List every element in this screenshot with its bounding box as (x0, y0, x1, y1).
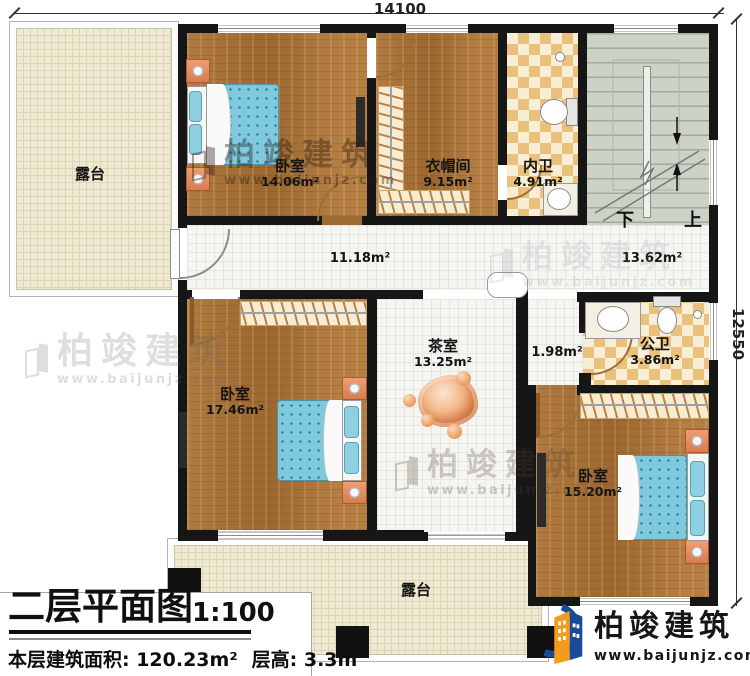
wall-hall-bath2-b (579, 373, 591, 385)
wall-cloak-bath-a (498, 33, 507, 165)
wall-bedroom3-left (528, 385, 536, 606)
wall-row1-a (187, 216, 322, 225)
cabinet (487, 272, 528, 298)
pillow (189, 91, 202, 122)
pillow (690, 500, 705, 536)
room-label-terrace-bottom: 露台 (366, 582, 466, 599)
sink-basin (547, 188, 571, 210)
valve-icon (693, 310, 702, 319)
wall-tearoom-top (377, 290, 423, 299)
room-label-bath-private: 内卫 4.91m² (498, 158, 578, 190)
plan-scale: 1:100 (192, 600, 275, 626)
nightstand (186, 59, 210, 83)
stone-ball (403, 394, 416, 407)
wall-tearoom-right (516, 290, 528, 541)
room-label-terrace-top: 露台 (40, 166, 140, 183)
dimension-right-value: 12550 (729, 294, 747, 374)
door-leaf-terrace (170, 229, 180, 279)
window (218, 530, 323, 541)
stone-ball (447, 424, 462, 439)
wall-bedroom1-cloak-a (367, 33, 376, 38)
sink-basin (597, 306, 629, 332)
nightstand (186, 167, 210, 191)
floor-area-text: 本层建筑面积: 120.23m² (8, 645, 238, 672)
brand-name: 柏竣建筑 (594, 612, 734, 642)
title-underline (9, 630, 251, 634)
bed-sheet (207, 84, 231, 165)
wardrobe-rack (580, 393, 709, 419)
wall-bedroom1-cloak-b (367, 78, 376, 216)
room-label-bedroom2: 卧室 17.46m² (185, 386, 285, 418)
wall-row2-b (240, 290, 367, 299)
bed-sheet (323, 400, 342, 481)
hall-floor (528, 299, 583, 385)
window (709, 303, 718, 360)
stair-break-line (587, 33, 709, 225)
stairs-up-label: 上 (678, 206, 708, 232)
room-label-corridor: 11.18m² (310, 252, 410, 267)
stairs-down-label: 下 (610, 206, 640, 232)
wall-left-upper (178, 24, 187, 228)
dimension-top-value: 14100 (355, 0, 445, 18)
floor-plan: 露台 卧室 14.06m² 衣帽间 9.15m² 内卫 4.91m² 11.18… (0, 0, 750, 676)
wall-bath-stairs (578, 24, 587, 225)
room-label-bedroom1: 卧室 14.06m² (240, 158, 340, 190)
pillow (344, 442, 359, 474)
toilet-bowl (540, 99, 568, 125)
pillow (690, 461, 705, 497)
tv (356, 97, 365, 147)
watermark-logo-icon (25, 344, 49, 378)
room-label-cloakroom: 衣帽间 9.15m² (398, 158, 498, 190)
brand-url: www.baijunjz.com (594, 648, 750, 664)
brand-logo-icon (533, 602, 591, 670)
stone-ball (421, 414, 434, 427)
room-label-bedroom3: 卧室 15.20m² (543, 468, 643, 500)
nightstand (342, 377, 367, 400)
window (406, 24, 468, 33)
wall-cloak-bath-b (498, 200, 507, 216)
window (580, 597, 690, 606)
toilet-bowl (657, 307, 677, 334)
floor-height-text: 层高: 3.3m (252, 645, 358, 672)
window (709, 140, 718, 205)
plan-info-line: 本层建筑面积: 120.23m² 层高: 3.3m (8, 645, 357, 672)
wall-bath2-top (577, 292, 709, 302)
room-label-tearoom: 茶室 13.25m² (393, 338, 493, 370)
nightstand (685, 429, 709, 453)
wardrobe-rack (240, 301, 367, 326)
nightstand (342, 481, 367, 504)
tv (179, 412, 187, 468)
terrace-top-floor (10, 22, 178, 296)
pillow (189, 124, 202, 155)
title-underline-thin (9, 638, 251, 640)
plan-title: 二层平面图 (8, 588, 193, 625)
room-label-landing: 13.62m² (602, 252, 702, 267)
window (218, 24, 320, 33)
wall-row1-b (362, 216, 578, 225)
toilet-tank (653, 296, 681, 307)
wall-bedroom2-tearoom (367, 290, 377, 530)
valve-icon (555, 52, 565, 62)
room-label-bath-public: 公卫 3.86m² (605, 336, 705, 368)
pillow (344, 406, 359, 438)
window (614, 24, 678, 33)
sliding-door (428, 532, 505, 541)
stone-ball (456, 371, 471, 386)
room-label-hall: 1.98m² (517, 346, 597, 361)
wardrobe-rack (378, 190, 470, 214)
nightstand (685, 540, 709, 564)
